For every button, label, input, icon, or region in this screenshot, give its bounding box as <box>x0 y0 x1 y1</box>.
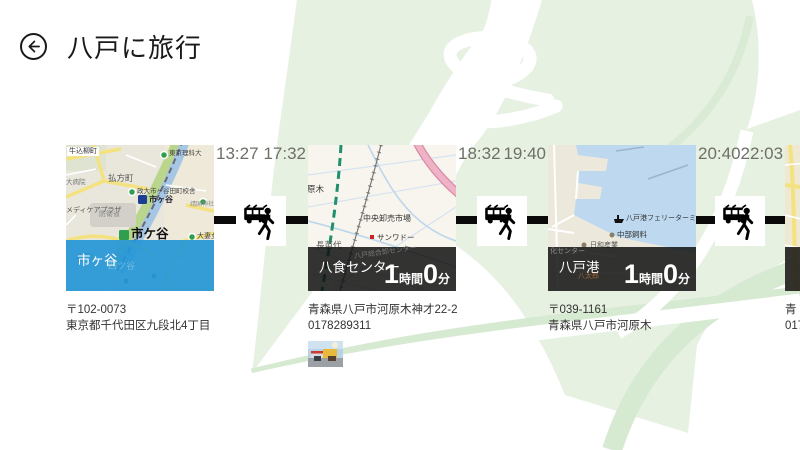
duration-minutes-unit: 分 <box>438 273 450 285</box>
stop-footer: 化センター 八太郎 八戸港 1 時間 0 分 <box>548 247 696 291</box>
address-line: 青 <box>785 302 800 318</box>
duration-hours-unit: 時間 <box>639 273 663 285</box>
map-label: 中央卸売市場 <box>363 215 411 223</box>
stop-card-ichigaya[interactable]: 牛込柳町 大病院 払方町 東京理科大 政大市ヶ谷田町校舎 メディケアプラザ 防衛… <box>66 145 214 291</box>
map-label: 靖国神社 <box>190 202 214 208</box>
page-title: 八戸に旅行 <box>67 28 202 65</box>
stop-card-hasshoku-center[interactable]: 原木 中央卸売市場 サンワドー 長苗代 八戸総合卸センター 八食センター 1 時… <box>308 145 456 291</box>
transit-bus-walk-icon[interactable] <box>236 196 286 246</box>
stop-address-partial: 青 017 <box>785 302 800 334</box>
map-label: 原木 <box>308 185 324 194</box>
stop-address-hasshoku: 青森県八戸市河原木神才22-2 0178289311 <box>308 302 458 367</box>
bus-walk-glyph <box>481 200 523 242</box>
depart-time: 18:32 <box>458 144 501 164</box>
stop-card-partial[interactable] <box>785 145 800 291</box>
arrive-time: 22:03 <box>741 144 784 164</box>
app-window: 八戸に旅行 13:27 17:32 18:32 19:40 20:40 22:0… <box>0 0 800 450</box>
stop-name: 市ヶ谷 <box>77 249 118 269</box>
map-label: サンワドー <box>377 234 415 242</box>
stop-address-ichigaya: 〒102-0073 東京都千代田区九段北4丁目 <box>66 302 210 334</box>
place-photo-thumbnail[interactable] <box>308 341 343 367</box>
stop-footer: 八戸総合卸センター 八食センター 1 時間 0 分 <box>308 247 456 291</box>
leg-times: 13:27 17:32 <box>216 144 306 164</box>
map-label: 防衛省 <box>99 211 120 218</box>
arrive-time: 19:40 <box>503 144 546 164</box>
stop-card-hachinohe-port[interactable]: 八戸港フェリーターミナル 中部飼料 日和産業 化センター 八太郎 八戸港 1 時… <box>548 145 696 291</box>
map-label: 化センター <box>550 248 585 255</box>
postal-code: 〒102-0073 <box>66 302 210 318</box>
back-arrow-icon <box>26 39 41 54</box>
stop-name: 八戸港 <box>559 256 600 276</box>
depart-time: 13:27 <box>216 144 259 164</box>
bus-walk-glyph <box>719 200 761 242</box>
duration-minutes-unit: 分 <box>678 273 690 285</box>
map-label: 牛込柳町 <box>67 147 99 156</box>
map-label: 中部飼料 <box>617 231 647 239</box>
stop-address-port: 〒039-1161 青森県八戸市河原木 <box>548 302 652 334</box>
transit-bus-walk-icon[interactable] <box>477 196 527 246</box>
duration-hours-unit: 時間 <box>399 273 423 285</box>
map-label: 八戸港フェリーターミナル <box>626 215 696 222</box>
duration-minutes: 0 <box>423 261 438 288</box>
arrive-time: 17:32 <box>263 144 306 164</box>
leg-times: 18:32 19:40 <box>458 144 546 164</box>
address-line: 青森県八戸市河原木 <box>548 318 652 334</box>
leg-times: 20:40 22:03 <box>698 144 783 164</box>
map-label: 大妻女 <box>197 233 214 240</box>
bus-walk-glyph <box>240 200 282 242</box>
postal-code: 〒039-1161 <box>548 302 652 318</box>
back-button[interactable] <box>20 33 47 60</box>
map-label: 払方町 <box>108 174 134 183</box>
header: 八戸に旅行 <box>20 28 202 65</box>
address-line: 東京都千代田区九段北4丁目 <box>66 318 210 334</box>
stay-duration: 1 時間 0 分 <box>384 261 450 288</box>
stay-duration: 1 時間 0 分 <box>624 261 690 288</box>
stop-footer: 四ツ谷 市ヶ谷 <box>66 240 214 291</box>
duration-hours: 1 <box>384 261 399 288</box>
map-label: 市ヶ谷 <box>149 196 173 204</box>
map-label: 市ケ谷 <box>131 228 169 241</box>
address-line: 青森県八戸市河原木神才22-2 <box>308 302 458 318</box>
stop-footer <box>785 247 800 291</box>
depart-time: 20:40 <box>698 144 741 164</box>
map-label: 東京理科大 <box>169 151 202 158</box>
map-label: 大病院 <box>66 180 86 187</box>
duration-minutes: 0 <box>663 261 678 288</box>
phone-number: 0178289311 <box>308 318 458 334</box>
transit-bus-walk-icon[interactable] <box>715 196 765 246</box>
duration-hours: 1 <box>624 261 639 288</box>
phone-number: 017 <box>785 318 800 334</box>
